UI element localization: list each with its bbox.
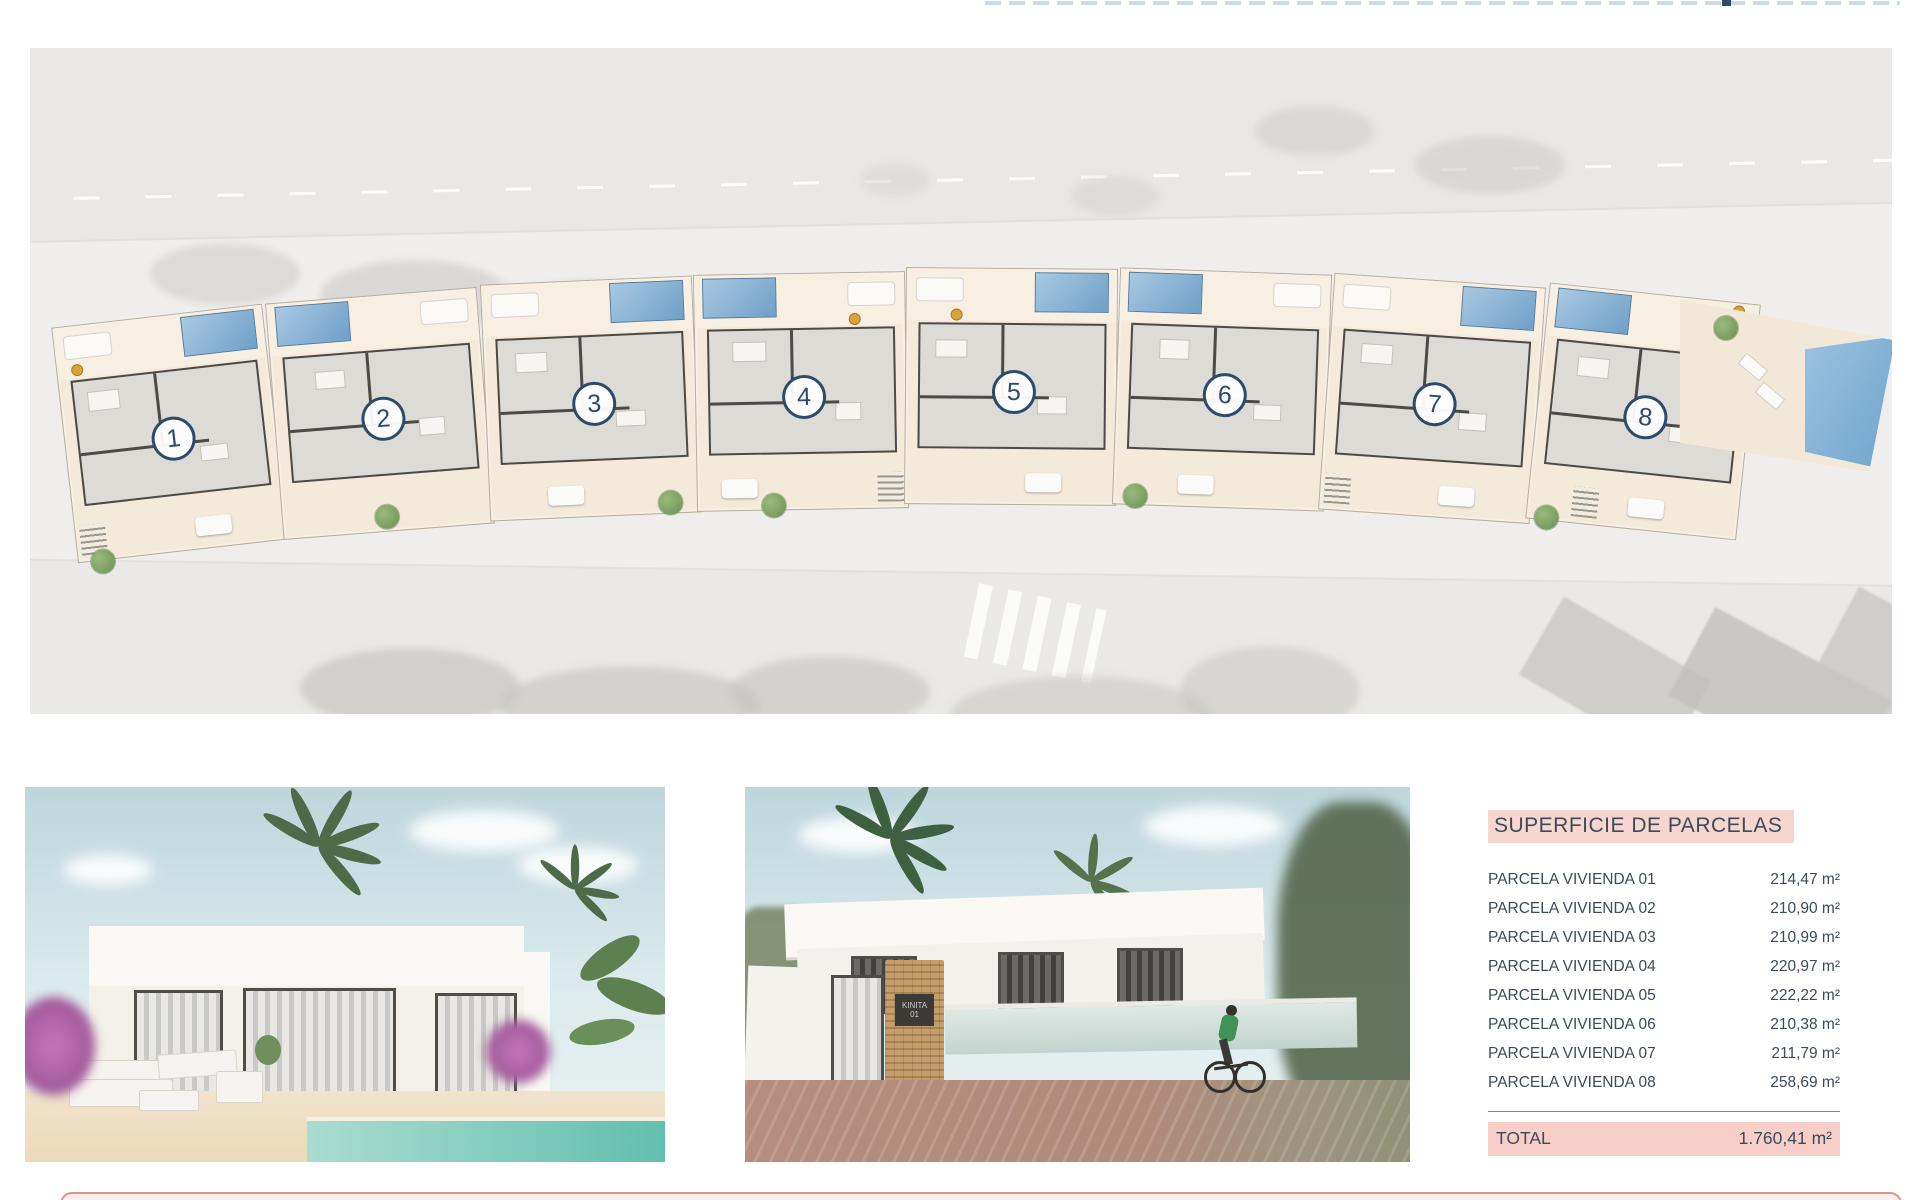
plan-car	[1025, 473, 1061, 492]
table-row: PARCELA VIVIENDA 03 210,99 m²	[1488, 923, 1840, 952]
furniture	[936, 340, 966, 356]
plan-pool	[1554, 287, 1632, 335]
furniture	[316, 371, 345, 389]
unit-number: 3	[587, 389, 602, 419]
plan-tree	[1533, 504, 1559, 530]
site-plan-aerial-image: 1 2	[30, 48, 1892, 714]
sun-lounger	[1739, 354, 1767, 380]
terrace-table	[917, 278, 963, 300]
cloud	[1144, 806, 1284, 846]
sun-lounger	[1757, 383, 1785, 409]
footer-accent-bar	[60, 1192, 1902, 1200]
entrance-sign: KINITA 01	[895, 994, 933, 1026]
coffee-table	[140, 1091, 198, 1110]
villa-band: 1 2	[30, 48, 1892, 714]
swimming-pool	[307, 1117, 665, 1162]
plan-car	[1627, 497, 1665, 520]
furniture	[1254, 405, 1280, 420]
bougainvillea	[486, 1020, 550, 1084]
cyclist-torso	[1217, 1013, 1239, 1042]
villa-plot-2: 2	[265, 287, 495, 540]
row-value: 210,99 m²	[1770, 929, 1840, 947]
villa-plot-1: 1	[51, 304, 288, 563]
villa-plot-7: 7	[1318, 273, 1546, 524]
unit-number: 1	[165, 423, 182, 453]
total-value: 1.760,41 m²	[1739, 1128, 1832, 1149]
row-value: 222,22 m²	[1770, 987, 1840, 1005]
window-opening	[1117, 948, 1183, 1007]
villa-plot-5: 5	[904, 267, 1118, 506]
table-row: PARCELA VIVIENDA 01 214,47 m²	[1488, 865, 1840, 894]
plan-tree	[658, 490, 683, 515]
row-label: PARCELA VIVIENDA 07	[1488, 1045, 1656, 1063]
furniture	[88, 390, 120, 411]
terrace-table	[1343, 285, 1390, 310]
cloud	[63, 855, 153, 885]
table-title: SUPERFICIE DE PARCELAS	[1488, 810, 1794, 843]
unit-number: 7	[1427, 389, 1443, 419]
row-label: PARCELA VIVIENDA 05	[1488, 987, 1656, 1005]
row-label: PARCELA VIVIENDA 03	[1488, 929, 1656, 947]
clipped-header-text	[985, 0, 1900, 6]
furniture	[1160, 340, 1189, 359]
terrace-table	[420, 299, 468, 325]
villa-plot-4: 4	[693, 271, 909, 512]
plan-pool	[1460, 286, 1537, 331]
row-value: 210,90 m²	[1770, 900, 1840, 918]
plan-tree	[374, 504, 400, 530]
row-label: PARCELA VIVIENDA 02	[1488, 900, 1656, 918]
row-value: 210,38 m²	[1770, 1016, 1840, 1034]
plan-car	[1177, 475, 1214, 495]
row-label: PARCELA VIVIENDA 04	[1488, 958, 1656, 976]
sign-line-2: 01	[895, 1010, 933, 1019]
row-label: PARCELA VIVIENDA 06	[1488, 1016, 1656, 1034]
plan-tree	[1714, 316, 1738, 340]
villa-plot-3: 3	[480, 275, 702, 521]
paved-street	[745, 1080, 1410, 1163]
row-value: 214,47 m²	[1770, 871, 1840, 889]
plan-car	[722, 479, 758, 499]
furniture	[1577, 357, 1609, 378]
terrace-table	[1274, 284, 1321, 308]
plan-car	[548, 485, 585, 506]
plan-stairs	[1571, 486, 1600, 519]
table-row: PARCELA VIVIENDA 04 220,97 m²	[1488, 952, 1840, 981]
armchair	[217, 1072, 262, 1102]
plan-pool	[180, 309, 258, 357]
street-view-render: KINITA 01	[745, 787, 1410, 1162]
unit-number: 8	[1637, 402, 1654, 432]
furniture	[1038, 397, 1066, 413]
plan-plant	[951, 308, 963, 320]
unit-number: 2	[375, 404, 391, 434]
furniture	[836, 403, 860, 419]
plan-pool	[609, 280, 685, 323]
unit-number-badge: 5	[992, 370, 1036, 414]
clipped-text-dark-fragment	[1722, 0, 1731, 6]
table-row: PARCELA VIVIENDA 06 210,38 m²	[1488, 1010, 1840, 1039]
table-row: PARCELA VIVIENDA 05 222,22 m²	[1488, 981, 1840, 1010]
plan-tree	[90, 548, 117, 575]
furniture	[516, 353, 547, 372]
clipped-text-fragments	[985, 1, 1900, 5]
plan-large-pool	[1805, 336, 1892, 467]
unit-number: 5	[1007, 377, 1021, 406]
cyclist	[1204, 1005, 1264, 1125]
row-label: PARCELA VIVIENDA 01	[1488, 871, 1656, 889]
table-row: PARCELA VIVIENDA 02 210,90 m²	[1488, 894, 1840, 923]
parcel-surface-table: SUPERFICIE DE PARCELAS PARCELA VIVIENDA …	[1488, 810, 1840, 1156]
furniture	[201, 444, 228, 461]
plan-stairs	[877, 471, 904, 501]
table-row: PARCELA VIVIENDA 08 258,69 m²	[1488, 1068, 1840, 1097]
plan-pool	[1128, 272, 1203, 315]
terrace-table	[491, 293, 538, 317]
plan-pool	[274, 301, 351, 347]
row-value: 220,97 m²	[1770, 958, 1840, 976]
row-value: 258,69 m²	[1770, 1074, 1840, 1092]
furniture	[420, 417, 445, 435]
table-rows: PARCELA VIVIENDA 01 214,47 m² PARCELA VI…	[1488, 865, 1840, 1097]
total-row: TOTAL 1.760,41 m²	[1488, 1122, 1840, 1156]
furniture	[1361, 344, 1392, 364]
unit-number: 4	[797, 382, 811, 411]
terrace-table	[848, 282, 894, 305]
cloud	[409, 810, 559, 852]
plan-pool	[1035, 272, 1109, 313]
unit-number: 6	[1217, 380, 1232, 409]
row-value: 211,79 m²	[1771, 1045, 1840, 1063]
table-divider	[1488, 1111, 1840, 1112]
plan-tree	[762, 493, 786, 517]
plan-car	[195, 514, 233, 537]
table-row: PARCELA VIVIENDA 07 211,79 m²	[1488, 1039, 1840, 1068]
villa-front-render	[25, 787, 665, 1162]
row-label: PARCELA VIVIENDA 08	[1488, 1074, 1656, 1092]
plant-pot	[255, 1035, 281, 1065]
plan-tree	[1123, 484, 1148, 509]
furniture	[617, 411, 646, 426]
plan-pool	[702, 277, 777, 318]
total-label: TOTAL	[1496, 1128, 1551, 1149]
plan-car	[1438, 486, 1475, 507]
brochure-page: 1 2	[0, 0, 1920, 1200]
sign-line-1: KINITA	[895, 1001, 933, 1010]
furniture	[1459, 413, 1486, 431]
glass-balustrade	[944, 997, 1357, 1054]
plan-stairs	[1323, 473, 1351, 505]
furniture	[733, 343, 765, 362]
villa-plot-6: 6	[1112, 267, 1332, 511]
